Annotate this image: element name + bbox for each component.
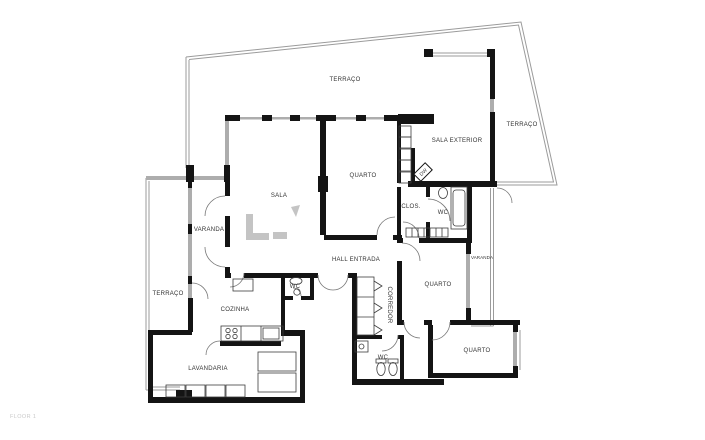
- sala-exterior-window: [490, 99, 494, 113]
- floor-note: FLOOR 1: [10, 414, 36, 420]
- entrance-door-left: [318, 275, 333, 290]
- room-label-terraco-top: TERRAÇO: [329, 77, 360, 83]
- room-label-varanda-left: VARANDA: [194, 227, 224, 233]
- entrance-door-right: [333, 275, 348, 290]
- room-label-quarto-2: QUARTO: [425, 282, 452, 288]
- floor-plan-svg: DW: [0, 0, 705, 440]
- sala-exterior-bottom-wall: [408, 181, 497, 187]
- quarto3-window: [513, 332, 517, 366]
- room-label-cozinha: COZINHA: [221, 307, 250, 313]
- room-label-sala: SALA: [271, 193, 287, 199]
- toilet-icon: [377, 363, 385, 376]
- bathtub: [451, 187, 467, 229]
- room-label-quarto-1: QUARTO: [350, 173, 377, 179]
- room-label-varanda-right: VARANDA: [471, 255, 493, 261]
- room-label-wc-bottom: WC: [378, 355, 389, 361]
- room-label-wc-hall: WC: [290, 284, 301, 290]
- corridor-left-wall: [352, 273, 357, 337]
- room-label-quarto-3: QUARTO: [464, 348, 491, 354]
- room-label-corredor: CORREDOR: [386, 286, 392, 323]
- watermark: [246, 205, 300, 240]
- sink-icon: [439, 188, 448, 199]
- fridge-icon: [233, 279, 253, 291]
- sala-exterior-railing: [428, 53, 492, 56]
- corridor-right-wall: [397, 261, 402, 320]
- wc-bottom-fixtures: [355, 341, 398, 376]
- room-label-terraco-left: TERRAÇO: [152, 291, 183, 297]
- room-label-hall-entrada: HALL ENTRADA: [332, 257, 380, 263]
- room-label-sala-exterior: SALA EXTERIOR: [432, 138, 483, 144]
- bidet-icon: [389, 363, 397, 376]
- corridor-closet: [357, 277, 382, 335]
- kitchen-counter: [221, 326, 283, 341]
- room-label-wc-suite: WC: [438, 210, 449, 216]
- room-label-clos: CLOS.: [401, 204, 420, 210]
- dw-diamond: DW: [414, 163, 432, 181]
- quarto2-window: [466, 254, 470, 308]
- room-label-terraco-right: TERRAÇO: [506, 122, 537, 128]
- floor-plan: DW TERRAÇO TERRAÇO SALA EXTERIOR QUARTO …: [0, 0, 705, 440]
- room-label-lavandaria: LAVANDARIA: [188, 366, 228, 372]
